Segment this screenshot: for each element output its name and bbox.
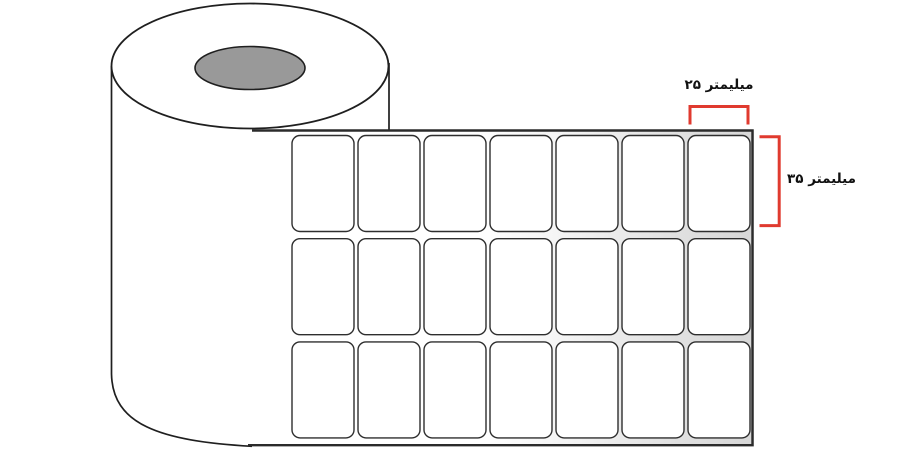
label-cell xyxy=(424,239,486,335)
label-grid xyxy=(292,136,750,438)
label-cell xyxy=(358,239,420,335)
label-cell xyxy=(292,342,354,438)
label-cell xyxy=(622,136,684,232)
label-cell xyxy=(622,239,684,335)
label-cell xyxy=(292,136,354,232)
label-cell xyxy=(490,342,552,438)
width-dimension-bracket xyxy=(690,107,748,125)
label-cell xyxy=(688,342,750,438)
label-cell xyxy=(358,136,420,232)
height-dimension-bracket xyxy=(760,137,780,226)
height-dimension-label: ۳۵ میلیمتر xyxy=(787,171,856,187)
roll-core-ellipse xyxy=(195,47,305,90)
label-cell xyxy=(688,136,750,232)
label-cell xyxy=(688,239,750,335)
label-roll-diagram: ۲۵ میلیمتر ۳۵ میلیمتر xyxy=(0,0,900,470)
label-cell xyxy=(424,136,486,232)
label-cell xyxy=(424,342,486,438)
diagram-canvas xyxy=(0,0,900,470)
roll-top-face xyxy=(112,4,389,129)
label-cell xyxy=(292,239,354,335)
label-cell xyxy=(490,239,552,335)
label-cell xyxy=(556,239,618,335)
width-dimension-label: ۲۵ میلیمتر xyxy=(649,77,789,93)
label-cell xyxy=(556,342,618,438)
label-sheet xyxy=(248,130,754,447)
label-cell xyxy=(556,136,618,232)
label-cell xyxy=(358,342,420,438)
label-cell xyxy=(622,342,684,438)
label-cell xyxy=(490,136,552,232)
